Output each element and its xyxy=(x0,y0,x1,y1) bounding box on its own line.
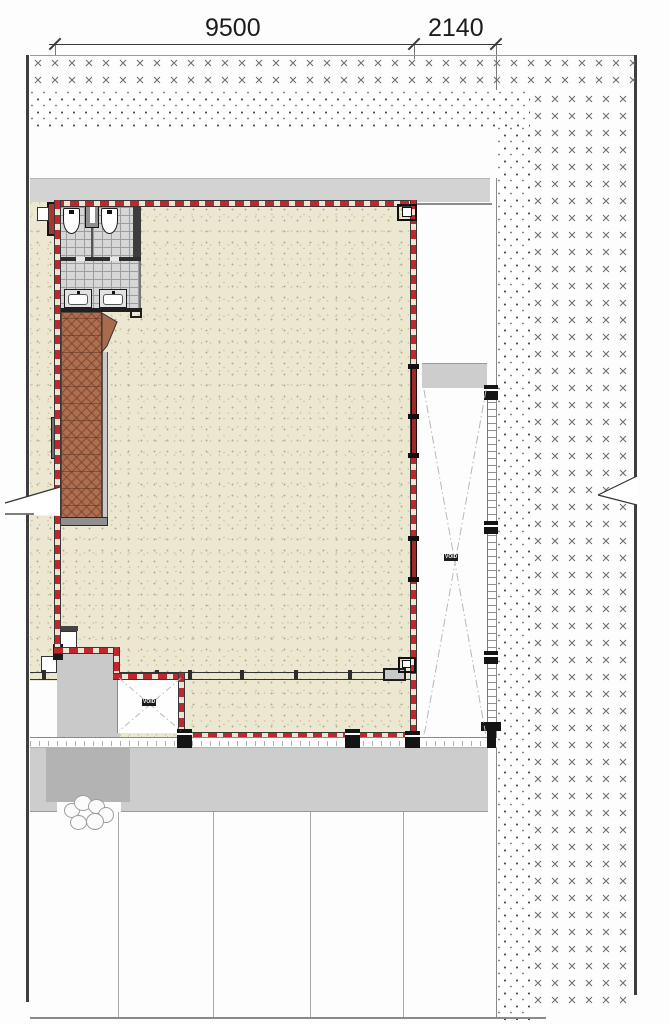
break-symbol-left-mask xyxy=(5,487,60,516)
courtyard-void-x xyxy=(424,390,486,736)
shaft-void-label: VOID xyxy=(142,699,156,706)
courtyard-void-label: VOID xyxy=(444,554,458,561)
stair-break-notch xyxy=(102,313,117,352)
floor-plan-canvas: 9500 2140 xyxy=(0,0,670,1024)
overlay-linework xyxy=(0,0,670,1024)
break-symbol-right-mask xyxy=(598,476,637,505)
